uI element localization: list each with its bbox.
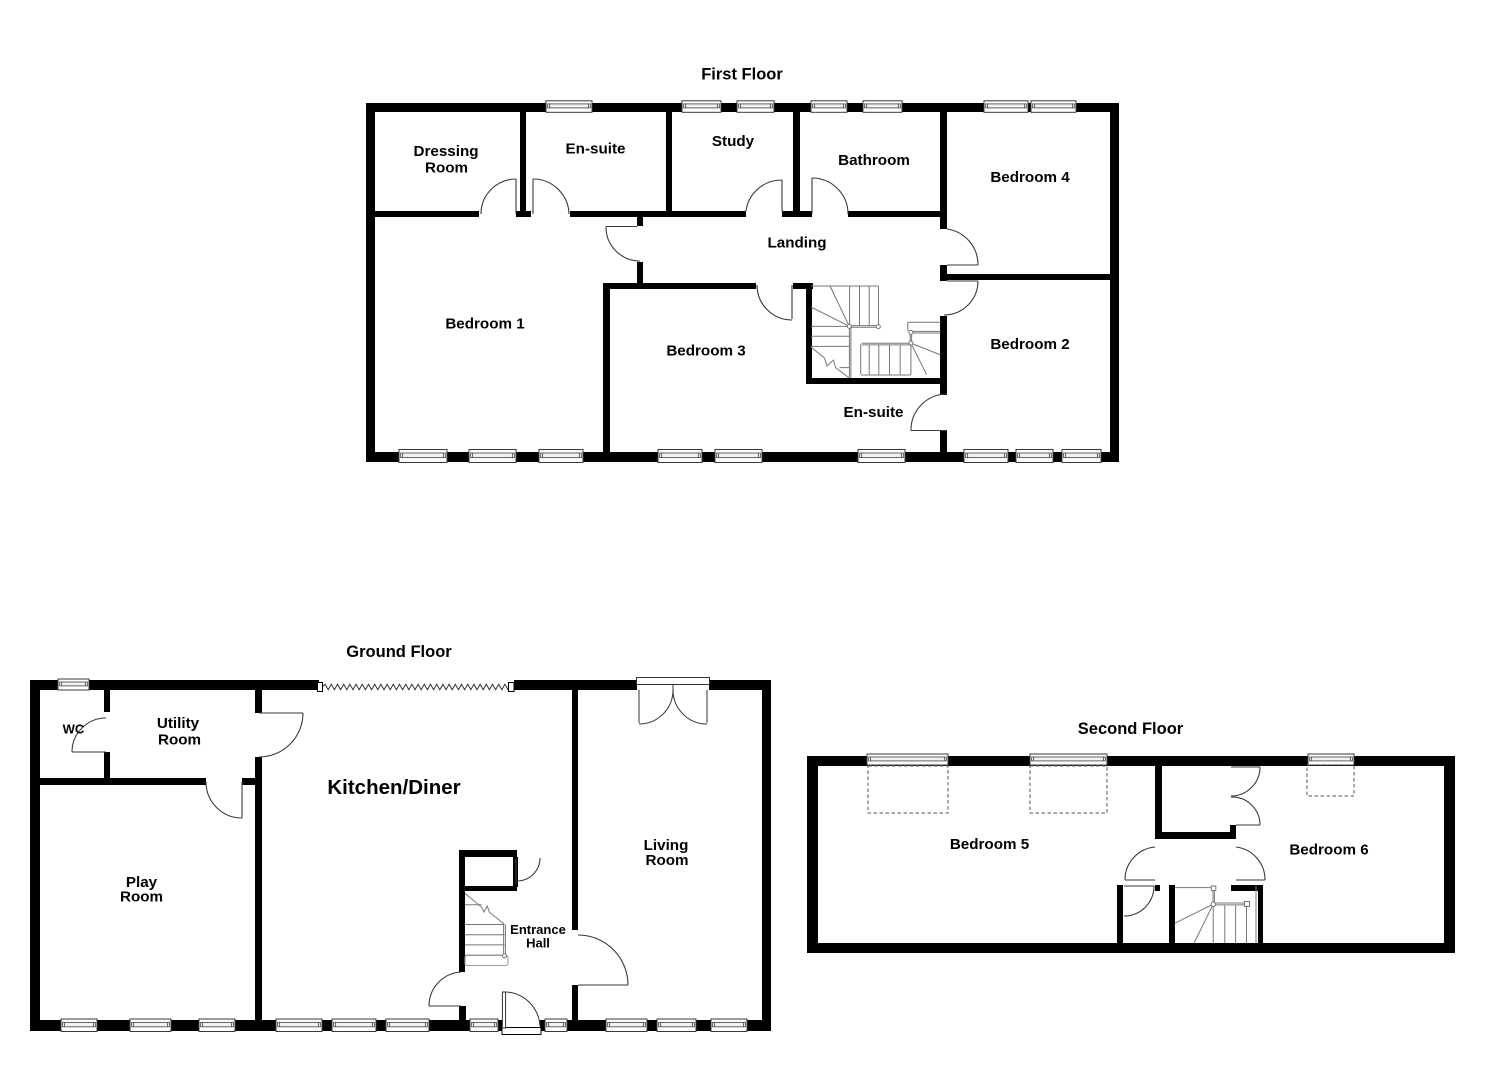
svg-text:Bedroom 6: Bedroom 6: [1289, 842, 1368, 859]
svg-text:Room: Room: [120, 889, 163, 906]
svg-text:WC: WC: [63, 722, 85, 737]
svg-text:Kitchen/Diner: Kitchen/Diner: [327, 776, 460, 799]
svg-text:Room: Room: [425, 159, 468, 176]
svg-text:Utility: Utility: [157, 715, 200, 732]
svg-text:Hall: Hall: [526, 936, 550, 951]
svg-text:First Floor: First Floor: [701, 66, 783, 84]
svg-text:Ground Floor: Ground Floor: [346, 643, 452, 661]
svg-text:En-suite: En-suite: [844, 404, 904, 421]
svg-text:Bedroom 4: Bedroom 4: [990, 169, 1070, 186]
svg-text:Bedroom 1: Bedroom 1: [445, 316, 525, 333]
svg-text:Room: Room: [158, 732, 201, 749]
svg-text:Dressing: Dressing: [414, 143, 479, 160]
svg-text:Second Floor: Second Floor: [1078, 720, 1184, 738]
svg-text:Bedroom 3: Bedroom 3: [666, 342, 745, 359]
svg-text:Landing: Landing: [767, 235, 826, 252]
svg-text:En-suite: En-suite: [566, 141, 626, 158]
svg-text:Bedroom 2: Bedroom 2: [990, 336, 1069, 353]
svg-text:Study: Study: [712, 133, 755, 150]
svg-text:Bathroom: Bathroom: [838, 152, 910, 169]
svg-text:Room: Room: [645, 852, 688, 869]
svg-text:Bedroom 5: Bedroom 5: [950, 836, 1030, 853]
